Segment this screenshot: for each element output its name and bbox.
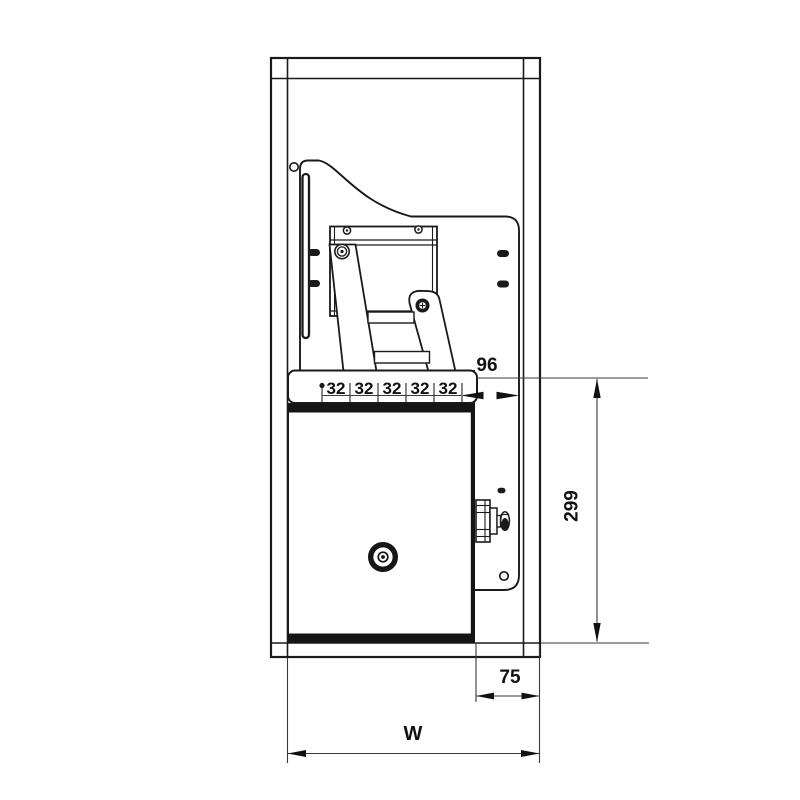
front-panel-body [288, 404, 474, 643]
pitch-value-5: 32 [439, 379, 458, 398]
slot-hole-left-lower [308, 280, 320, 287]
latch-hole-slot [498, 488, 506, 494]
slot-hole-left-upper [308, 249, 320, 256]
dim96-value: 96 [476, 355, 497, 376]
latch-bracket [476, 500, 490, 542]
panel-knob-center [381, 555, 385, 559]
pivot-screw-upper-center [340, 250, 343, 253]
technical-drawing-page: 32 32 32 32 32 96 [0, 0, 800, 800]
dimw-value: W [404, 723, 423, 745]
dimension-299: 299 [562, 379, 601, 642]
plate-hook-tab [290, 163, 298, 171]
front-panel [288, 404, 475, 643]
dim75-arrow-left [476, 693, 494, 700]
slot-hole-right-upper [497, 250, 509, 257]
slot-hole-right-lower [497, 281, 509, 288]
cross-rung-lower [375, 352, 430, 364]
damper-strip [303, 174, 310, 338]
dim299-arrow-down [593, 623, 600, 642]
dimension-75: 75 [476, 643, 649, 763]
plate-corner-hole [500, 572, 508, 580]
pitch-value-3: 32 [383, 379, 402, 398]
front-panel-bottom-bar [288, 634, 474, 643]
latch-mid-block [490, 508, 497, 534]
pitch-value-2: 32 [355, 379, 374, 398]
dim299-value: 299 [562, 490, 583, 522]
cabinet-lift-diagram: 32 32 32 32 32 96 [0, 0, 800, 800]
pitch-value-4: 32 [411, 379, 430, 398]
cross-rung-upper [368, 312, 414, 323]
pitch-value-1: 32 [327, 379, 346, 398]
drilling-rail: 32 32 32 32 32 [288, 371, 477, 404]
dimw-arrow-right [521, 750, 540, 757]
panel-knob [371, 545, 396, 570]
housing-bolt-right-center [417, 228, 419, 230]
front-panel-top-bar [288, 404, 474, 413]
dim75-value: 75 [499, 667, 521, 688]
front-panel-right-edge [471, 404, 475, 643]
latch-knob-head-dark [501, 518, 508, 530]
housing-bolt-left-center [346, 229, 348, 231]
pitch-start-dot [319, 383, 324, 388]
dim299-arrow-up [593, 379, 600, 398]
dimw-arrow-left [288, 750, 307, 757]
dim75-arrow-right [522, 693, 540, 700]
